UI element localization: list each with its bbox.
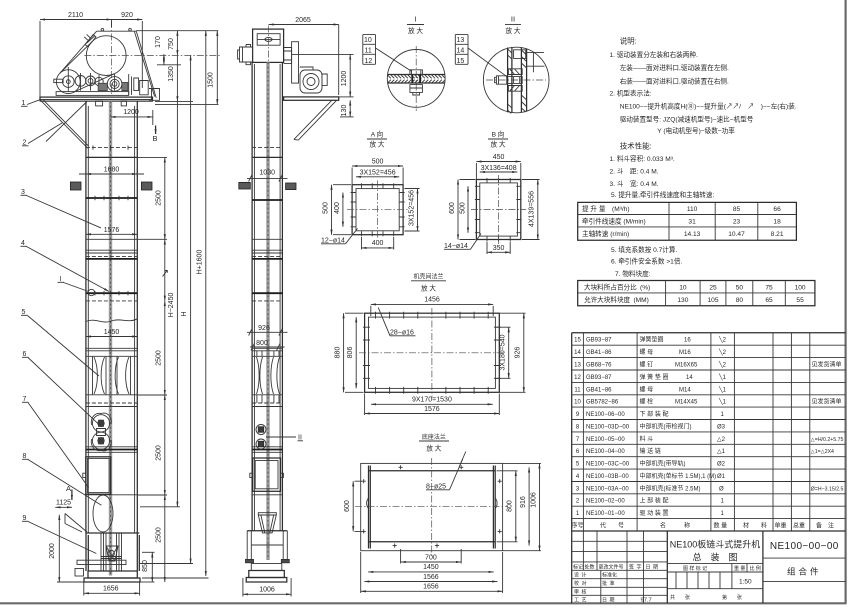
svg-text:1656: 1656 xyxy=(103,586,119,593)
svg-text:螺 栓: 螺 栓 xyxy=(640,398,654,406)
svg-text:右装——面对进料口,驱动装置在右侧.: 右装——面对进料口,驱动装置在右侧. xyxy=(620,76,729,85)
svg-text:14.13: 14.13 xyxy=(684,231,701,238)
svg-text:标记: 标记 xyxy=(573,563,583,570)
svg-text:NE100−01−00: NE100−01−00 xyxy=(586,511,625,517)
svg-text:13: 13 xyxy=(457,37,465,44)
svg-text:6. 牵引件安全系数 >1倍.: 6. 牵引件安全系数 >1倍. xyxy=(611,257,682,266)
svg-text:共 张: 共 张 xyxy=(670,594,690,601)
svg-text:2065: 2065 xyxy=(295,17,311,24)
svg-text:170: 170 xyxy=(155,36,162,48)
svg-text:╲2: ╲2 xyxy=(718,336,727,344)
svg-text:B: B xyxy=(153,134,158,143)
svg-text:500: 500 xyxy=(322,202,329,214)
svg-text:M14X45: M14X45 xyxy=(675,400,698,406)
svg-text:80: 80 xyxy=(736,297,744,304)
svg-text:130: 130 xyxy=(341,105,348,117)
svg-text:签 字: 签 字 xyxy=(629,563,642,570)
svg-text:A 向: A 向 xyxy=(371,130,383,139)
svg-text:NE100板链斗式提升机: NE100板链斗式提升机 xyxy=(670,539,761,550)
svg-text:926: 926 xyxy=(515,347,522,359)
svg-text:允许大块料块度 (MM): 允许大块料块度 (MM) xyxy=(584,295,649,304)
svg-text:NE100−05−00: NE100−05−00 xyxy=(586,437,625,443)
svg-text:放 大: 放 大 xyxy=(421,284,436,293)
svg-text:75: 75 xyxy=(765,285,773,292)
svg-text:600: 600 xyxy=(449,202,456,214)
svg-text:920: 920 xyxy=(121,12,133,19)
svg-text:800: 800 xyxy=(256,340,268,347)
svg-text:Ø: Ø xyxy=(719,486,724,492)
svg-text:1125: 1125 xyxy=(56,500,71,507)
svg-text:Ø3: Ø3 xyxy=(717,424,726,430)
svg-text:料 斗: 料 斗 xyxy=(640,435,654,443)
svg-text:31: 31 xyxy=(688,219,696,226)
svg-text:数 量: 数 量 xyxy=(714,522,728,530)
svg-text:1576: 1576 xyxy=(104,227,120,234)
svg-text:NE100−03A−00: NE100−03A−00 xyxy=(586,486,629,492)
svg-text:500: 500 xyxy=(460,202,467,214)
svg-text:916: 916 xyxy=(520,496,527,508)
svg-text:100: 100 xyxy=(795,285,806,292)
svg-text:1350: 1350 xyxy=(168,66,175,82)
svg-text:见发货清单: 见发货清单 xyxy=(812,398,842,406)
svg-text:工 艺: 工 艺 xyxy=(574,598,587,604)
svg-text:850: 850 xyxy=(142,560,149,572)
svg-text:130: 130 xyxy=(677,297,688,304)
svg-text:1:50: 1:50 xyxy=(739,579,752,586)
svg-text:总 装 图: 总 装 图 xyxy=(692,552,737,563)
svg-text:放 大: 放 大 xyxy=(408,26,423,35)
svg-text:技术性能:: 技术性能: xyxy=(620,140,652,150)
svg-text:600: 600 xyxy=(344,500,351,512)
svg-text:1006: 1006 xyxy=(259,587,275,594)
svg-text:大块料所占百分比 (%): 大块料所占百分比 (%) xyxy=(584,283,650,292)
svg-text:1450: 1450 xyxy=(104,329,120,336)
svg-text:9X170=1530: 9X170=1530 xyxy=(412,397,452,404)
svg-text:提 升 量 (M³/h): 提 升 量 (M³/h) xyxy=(582,204,630,213)
svg-text:B 向: B 向 xyxy=(492,130,505,139)
svg-text:牵引件线速度 (M/min): 牵引件线速度 (M/min) xyxy=(582,217,646,226)
svg-text:底座法兰: 底座法兰 xyxy=(422,433,446,441)
svg-text:1576: 1576 xyxy=(424,406,440,413)
svg-text:下 部 装 配: 下 部 装 配 xyxy=(640,410,669,418)
svg-text:代 号: 代 号 xyxy=(600,522,624,530)
svg-text:800: 800 xyxy=(507,500,514,512)
svg-text:880: 880 xyxy=(334,347,341,359)
svg-text:Y (电动机型号)−级数−功率: Y (电动机型号)−级数−功率 xyxy=(657,126,735,135)
svg-text:750: 750 xyxy=(168,38,175,50)
svg-text:放 大: 放 大 xyxy=(490,140,505,149)
svg-text:左装——面对进料口,驱动装置在左侧.: 左装——面对进料口,驱动装置在左侧. xyxy=(620,63,729,72)
svg-text:弹簧垫圈: 弹簧垫圈 xyxy=(640,336,664,344)
svg-text:中部机壳(标准节 2.5M): 中部机壳(标准节 2.5M) xyxy=(640,484,701,492)
svg-text:I: I xyxy=(414,15,416,24)
svg-text:╲2: ╲2 xyxy=(718,361,727,369)
svg-text:NE100−−提升机高度H(Ⓡ)−−提升量(↗↗/ ↗ )−: NE100−−提升机高度H(Ⓡ)−−提升量(↗↗/ ↗ )−−左(右)装. xyxy=(620,101,797,110)
svg-text:△=H/0.2+5.75: △=H/0.2+5.75 xyxy=(811,437,844,443)
svg-text:3X136=408: 3X136=408 xyxy=(481,165,517,172)
svg-text:GB68−76: GB68−76 xyxy=(586,363,612,369)
svg-text:△1=△2X4: △1=△2X4 xyxy=(811,449,834,455)
svg-text:11: 11 xyxy=(365,48,372,55)
svg-text:NE100−03D−00: NE100−03D−00 xyxy=(586,424,630,430)
svg-text:重 量: 重 量 xyxy=(734,565,745,572)
svg-text:╲1: ╲1 xyxy=(718,398,727,406)
svg-text:单重: 单重 xyxy=(775,522,787,530)
svg-text:△1: △1 xyxy=(717,449,726,455)
svg-text:NE100−00−00: NE100−00−00 xyxy=(770,541,839,552)
svg-text:M16: M16 xyxy=(679,350,691,356)
svg-text:3X152=456: 3X152=456 xyxy=(360,170,396,177)
svg-text:见发货清单: 见发货清单 xyxy=(812,361,842,369)
svg-text:2. 机型表示法:: 2. 机型表示法: xyxy=(610,89,652,98)
svg-text:中部机壳(带检视门): 中部机壳(带检视门) xyxy=(640,422,692,430)
svg-text:1030: 1030 xyxy=(259,170,275,177)
svg-text:3X180=540: 3X180=540 xyxy=(500,334,507,370)
svg-text:2500: 2500 xyxy=(155,527,162,543)
svg-text:第 张: 第 张 xyxy=(722,594,742,601)
svg-text:放 大: 放 大 xyxy=(369,140,384,149)
svg-text:14: 14 xyxy=(457,48,465,55)
svg-text:中部机壳(带导轨): 中部机壳(带导轨) xyxy=(640,460,686,468)
svg-text:批 准: 批 准 xyxy=(602,580,615,587)
svg-text:15: 15 xyxy=(574,338,581,344)
svg-text:审 核: 审 核 xyxy=(574,588,587,595)
svg-text:7. 物料块度:: 7. 物料块度: xyxy=(615,269,651,278)
svg-text:10: 10 xyxy=(364,37,372,44)
svg-text:110: 110 xyxy=(687,206,698,213)
svg-text:驱 动 装 置: 驱 动 装 置 xyxy=(640,509,669,517)
svg-text:400: 400 xyxy=(334,202,341,214)
svg-text:2. 斗 距: 0.4 M.: 2. 斗 距: 0.4 M. xyxy=(610,167,659,175)
svg-text:926: 926 xyxy=(258,325,270,332)
svg-text:设 计: 设 计 xyxy=(574,572,587,579)
svg-text:1006: 1006 xyxy=(530,492,537,508)
svg-text:╲1: ╲1 xyxy=(718,373,727,381)
svg-text:日 期: 日 期 xyxy=(602,598,615,604)
svg-text:10: 10 xyxy=(574,400,581,406)
svg-text:1566: 1566 xyxy=(423,574,439,581)
svg-text:1656: 1656 xyxy=(423,584,439,591)
svg-text:2110: 2110 xyxy=(68,12,83,19)
svg-text:14: 14 xyxy=(686,375,693,381)
svg-text:H+1600: H+1600 xyxy=(196,250,203,275)
svg-text:上 部 装 配: 上 部 装 配 xyxy=(640,497,669,505)
svg-text:Ø=H−3.15/2.5: Ø=H−3.15/2.5 xyxy=(811,486,844,492)
svg-text:NE100−02−00: NE100−02−00 xyxy=(586,499,625,505)
svg-text:放 大: 放 大 xyxy=(426,444,441,453)
svg-text:1500: 1500 xyxy=(208,72,215,88)
svg-text:1200: 1200 xyxy=(341,71,348,87)
svg-text:66: 66 xyxy=(773,206,781,213)
svg-text:23: 23 xyxy=(733,219,741,226)
svg-text:H: H xyxy=(181,311,188,316)
svg-text:5. 填充系数按 0.7计算.: 5. 填充系数按 0.7计算. xyxy=(611,245,677,254)
svg-text:25: 25 xyxy=(709,285,717,292)
svg-text:GB41−86: GB41−86 xyxy=(586,350,612,356)
svg-text:NE100−03B−00: NE100−03B−00 xyxy=(586,474,629,480)
svg-text:备 注: 备 注 xyxy=(816,522,834,530)
svg-text:1. 料斗容积: 0.033 M³.: 1. 料斗容积: 0.033 M³. xyxy=(610,154,675,163)
svg-text:1450: 1450 xyxy=(423,564,439,571)
svg-text:85: 85 xyxy=(733,206,741,213)
svg-text:机壳间法兰: 机壳间法兰 xyxy=(413,273,443,281)
svg-text:18: 18 xyxy=(773,219,781,226)
svg-text:50: 50 xyxy=(736,285,744,292)
svg-text:H−2450: H−2450 xyxy=(168,293,175,318)
svg-text:14: 14 xyxy=(574,350,581,356)
svg-text:5. 提升量,牵引件线速度和主轴转速:: 5. 提升量,牵引件线速度和主轴转速: xyxy=(611,190,714,199)
svg-text:13: 13 xyxy=(574,363,581,369)
svg-text:1680: 1680 xyxy=(104,167,120,174)
svg-text:╲1: ╲1 xyxy=(718,385,727,393)
svg-text:╲2: ╲2 xyxy=(718,348,727,356)
svg-text:1456: 1456 xyxy=(424,297,440,304)
svg-text:更改文件号: 更改文件号 xyxy=(599,563,624,570)
svg-text:1200: 1200 xyxy=(123,109,139,116)
svg-text:55: 55 xyxy=(796,297,804,304)
svg-text:材 料: 材 料 xyxy=(743,522,767,530)
svg-text:2500: 2500 xyxy=(155,350,162,366)
svg-text:700: 700 xyxy=(425,554,437,561)
svg-text:Ø2: Ø2 xyxy=(717,462,726,468)
svg-text:标准化: 标准化 xyxy=(602,572,617,579)
svg-text:II: II xyxy=(511,15,515,24)
svg-text:名 称: 名 称 xyxy=(660,522,690,530)
svg-text:806: 806 xyxy=(347,347,354,359)
svg-text:12: 12 xyxy=(574,375,581,381)
svg-text:M14: M14 xyxy=(679,387,691,393)
svg-text:说明:: 说明: xyxy=(620,36,637,46)
svg-text:主轴转速 (r/min): 主轴转速 (r/min) xyxy=(582,229,629,238)
svg-text:放 大: 放 大 xyxy=(505,26,520,35)
svg-text:M16X65: M16X65 xyxy=(675,363,698,369)
svg-text:65: 65 xyxy=(765,297,773,304)
svg-text:驱动装置型号: JZQ(减速机型号)−速比−机型号: 驱动装置型号: JZQ(减速机型号)−速比−机型号 xyxy=(620,114,754,123)
svg-text:中部机壳(单标节 1.5M),1 (M): 中部机壳(单标节 1.5M),1 (M) xyxy=(640,472,717,480)
svg-text:16: 16 xyxy=(684,338,691,344)
svg-text:1. 驱动装置分左装和右装两种.: 1. 驱动装置分左装和右装两种. xyxy=(610,50,698,59)
svg-text:螺 钉: 螺 钉 xyxy=(640,361,654,369)
svg-text:螺 母: 螺 母 xyxy=(640,348,654,356)
svg-text:2500: 2500 xyxy=(155,190,162,206)
svg-text:8.21: 8.21 xyxy=(771,231,784,238)
svg-text:NE100−04−00: NE100−04−00 xyxy=(586,449,625,455)
svg-text:GB93−87: GB93−87 xyxy=(586,375,612,381)
svg-text:10.47: 10.47 xyxy=(728,231,745,238)
svg-text:105: 105 xyxy=(707,297,718,304)
svg-text:Ø1: Ø1 xyxy=(717,474,726,480)
svg-text:处数: 处数 xyxy=(585,563,595,570)
svg-text:组合件: 组合件 xyxy=(787,567,822,577)
svg-text:螺 母: 螺 母 xyxy=(640,385,654,393)
svg-text:3. 斗 宽: 0.4 M.: 3. 斗 宽: 0.4 M. xyxy=(610,179,659,188)
svg-text:△2: △2 xyxy=(717,437,726,443)
svg-text:日 期: 日 期 xyxy=(646,564,659,570)
svg-text:NE100−03C−00: NE100−03C−00 xyxy=(586,462,630,468)
svg-text:GB5782−86: GB5782−86 xyxy=(586,400,619,406)
svg-text:3X152=456: 3X152=456 xyxy=(408,190,415,226)
svg-text:2500: 2500 xyxy=(155,445,162,461)
svg-text:4X139=556: 4X139=556 xyxy=(529,191,536,227)
svg-text:GB93−87: GB93−87 xyxy=(586,338,612,344)
svg-text:输 送 链: 输 送 链 xyxy=(640,447,661,455)
svg-text:10: 10 xyxy=(679,285,687,292)
svg-text:450: 450 xyxy=(493,154,505,161)
svg-text:总重: 总重 xyxy=(793,522,805,530)
svg-text:97.7: 97.7 xyxy=(641,597,652,603)
svg-text:NE100−06−00: NE100−06−00 xyxy=(586,412,625,418)
svg-text:2000: 2000 xyxy=(49,543,56,559)
svg-text:11: 11 xyxy=(574,387,581,393)
svg-text:图 样 标 记: 图 样 标 记 xyxy=(683,565,707,572)
svg-text:比 例: 比 例 xyxy=(750,565,761,572)
svg-text:400: 400 xyxy=(372,240,384,247)
svg-text:350: 350 xyxy=(493,245,505,252)
svg-text:弹 簧 垫 圈: 弹 簧 垫 圈 xyxy=(640,373,669,381)
svg-text:校 对: 校 对 xyxy=(574,580,587,587)
svg-text:GB41−86: GB41−86 xyxy=(586,387,612,393)
svg-text:序号: 序号 xyxy=(571,522,583,530)
svg-text:500: 500 xyxy=(372,158,384,165)
